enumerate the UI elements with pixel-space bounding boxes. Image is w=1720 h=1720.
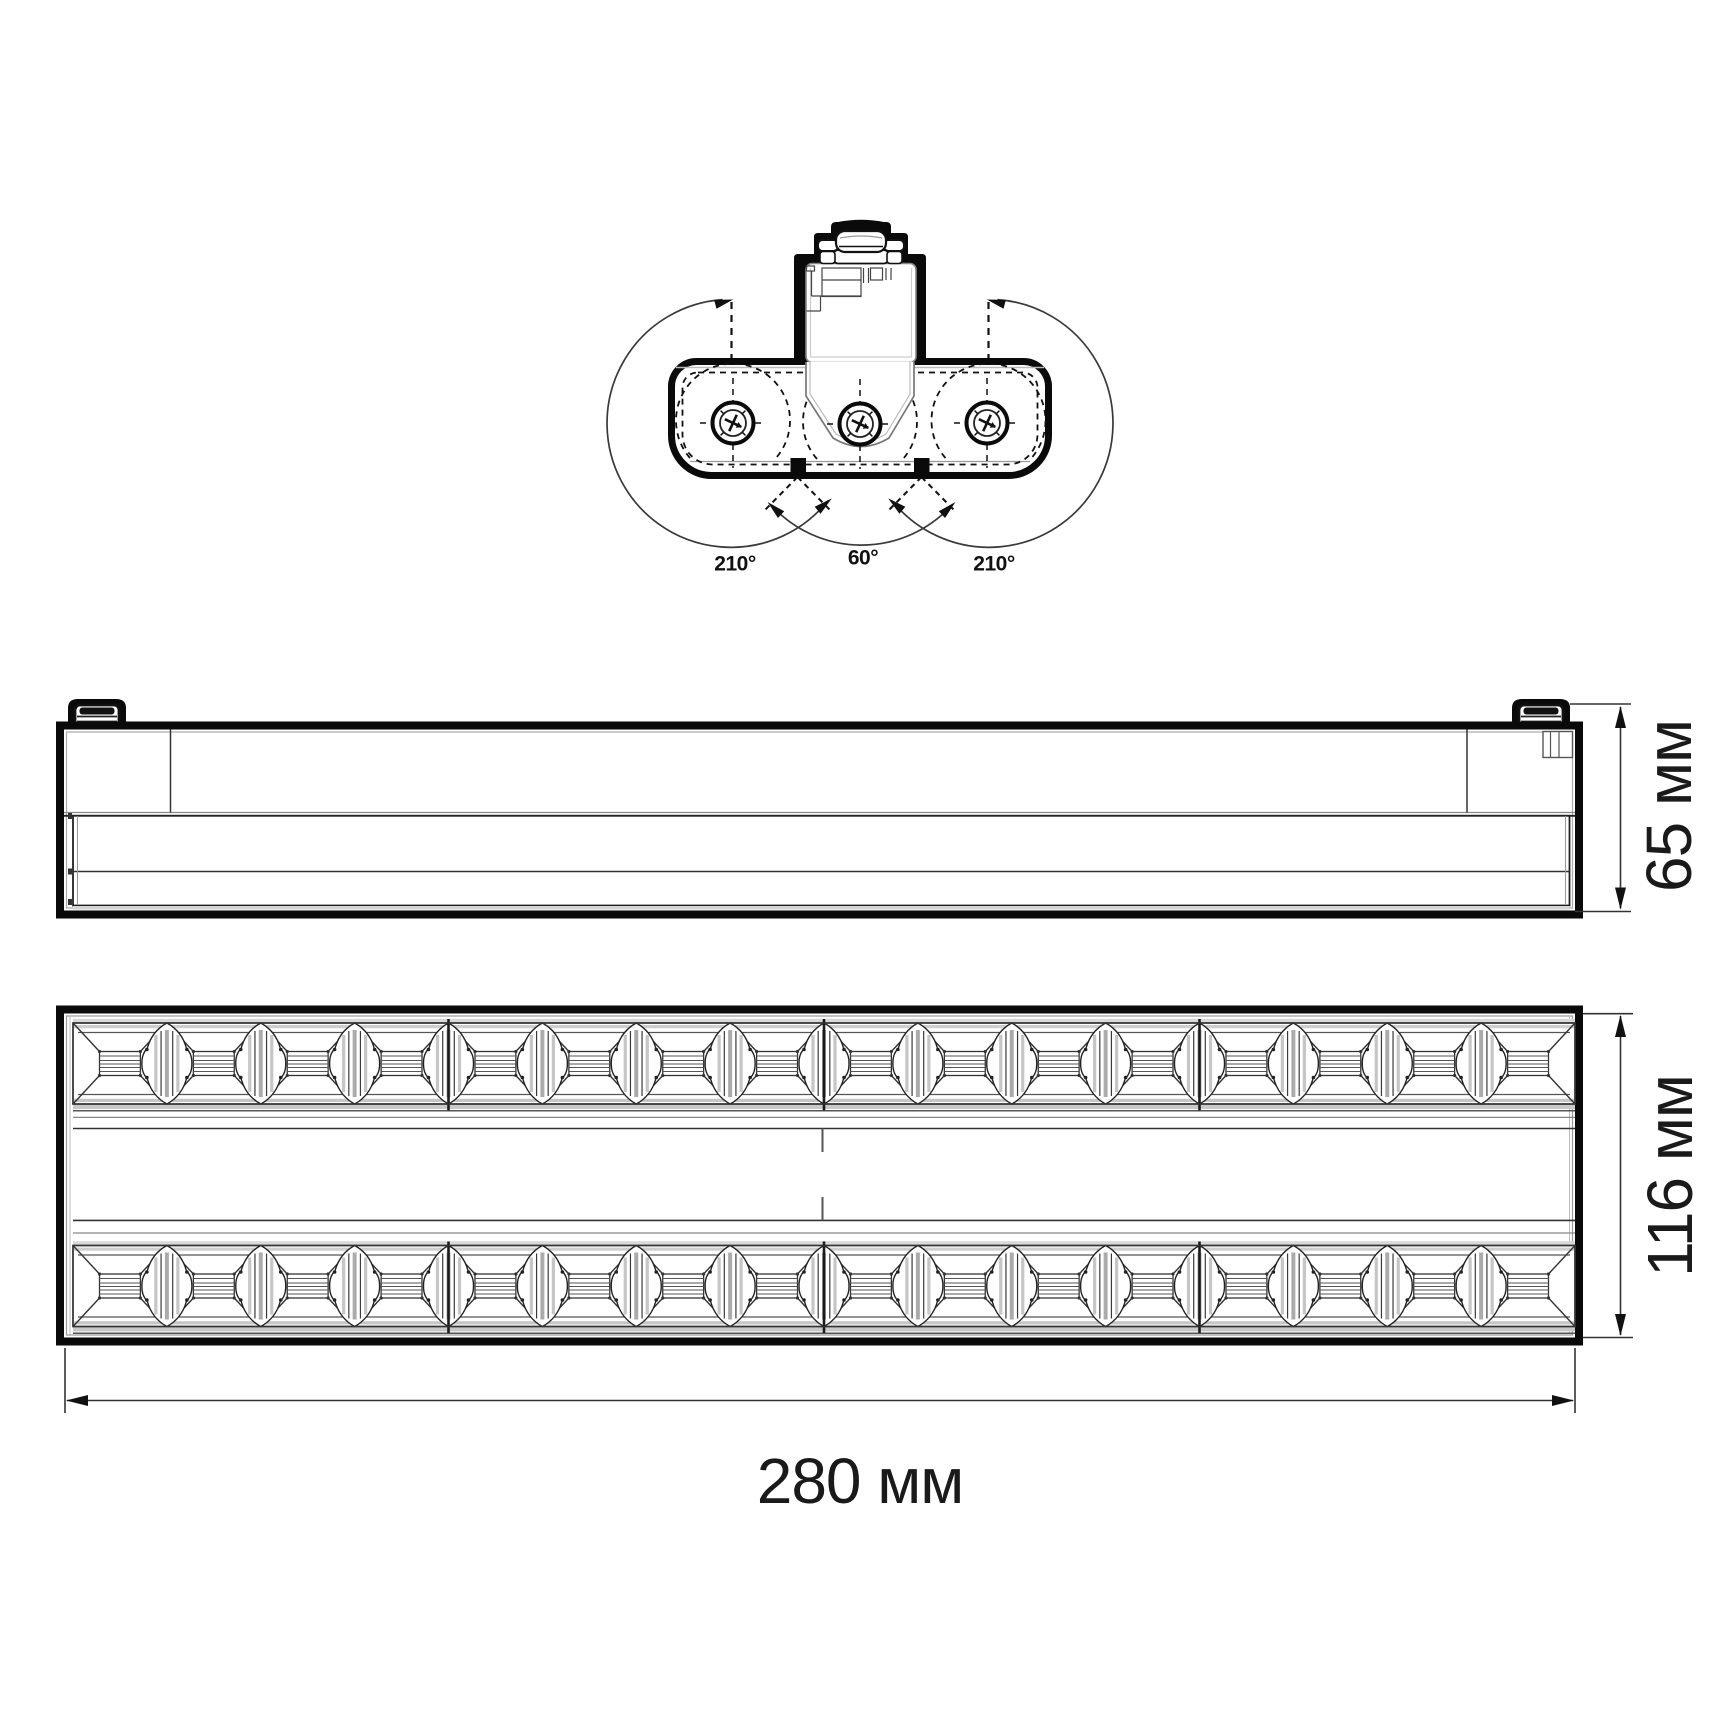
svg-text:60°: 60° bbox=[848, 547, 878, 570]
svg-text:65 мм: 65 мм bbox=[1633, 720, 1705, 892]
svg-text:116 мм: 116 мм bbox=[1634, 1075, 1706, 1277]
svg-text:210°: 210° bbox=[714, 553, 756, 576]
svg-text:210°: 210° bbox=[973, 553, 1015, 576]
svg-text:280 мм: 280 мм bbox=[757, 1445, 964, 1517]
